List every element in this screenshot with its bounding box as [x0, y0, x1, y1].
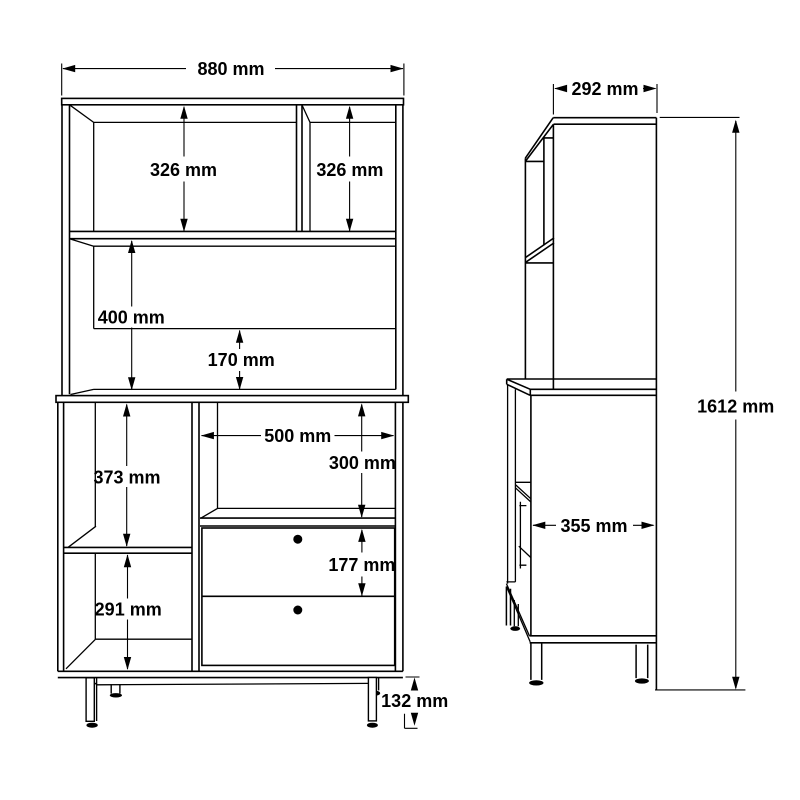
svg-text:292 mm: 292 mm [571, 79, 638, 99]
svg-text:132 mm: 132 mm [381, 691, 448, 711]
svg-text:291 mm: 291 mm [95, 600, 162, 620]
svg-text:500 mm: 500 mm [264, 426, 331, 446]
svg-text:326 mm: 326 mm [150, 160, 217, 180]
svg-text:400 mm: 400 mm [98, 308, 165, 328]
svg-text:373 mm: 373 mm [93, 467, 160, 487]
svg-text:880 mm: 880 mm [197, 59, 264, 79]
svg-text:1612 mm: 1612 mm [697, 396, 774, 416]
svg-text:326 mm: 326 mm [316, 160, 383, 180]
svg-text:170 mm: 170 mm [208, 350, 275, 370]
svg-text:177 mm: 177 mm [328, 555, 395, 575]
svg-text:355 mm: 355 mm [560, 516, 627, 536]
svg-text:300 mm: 300 mm [329, 453, 396, 473]
